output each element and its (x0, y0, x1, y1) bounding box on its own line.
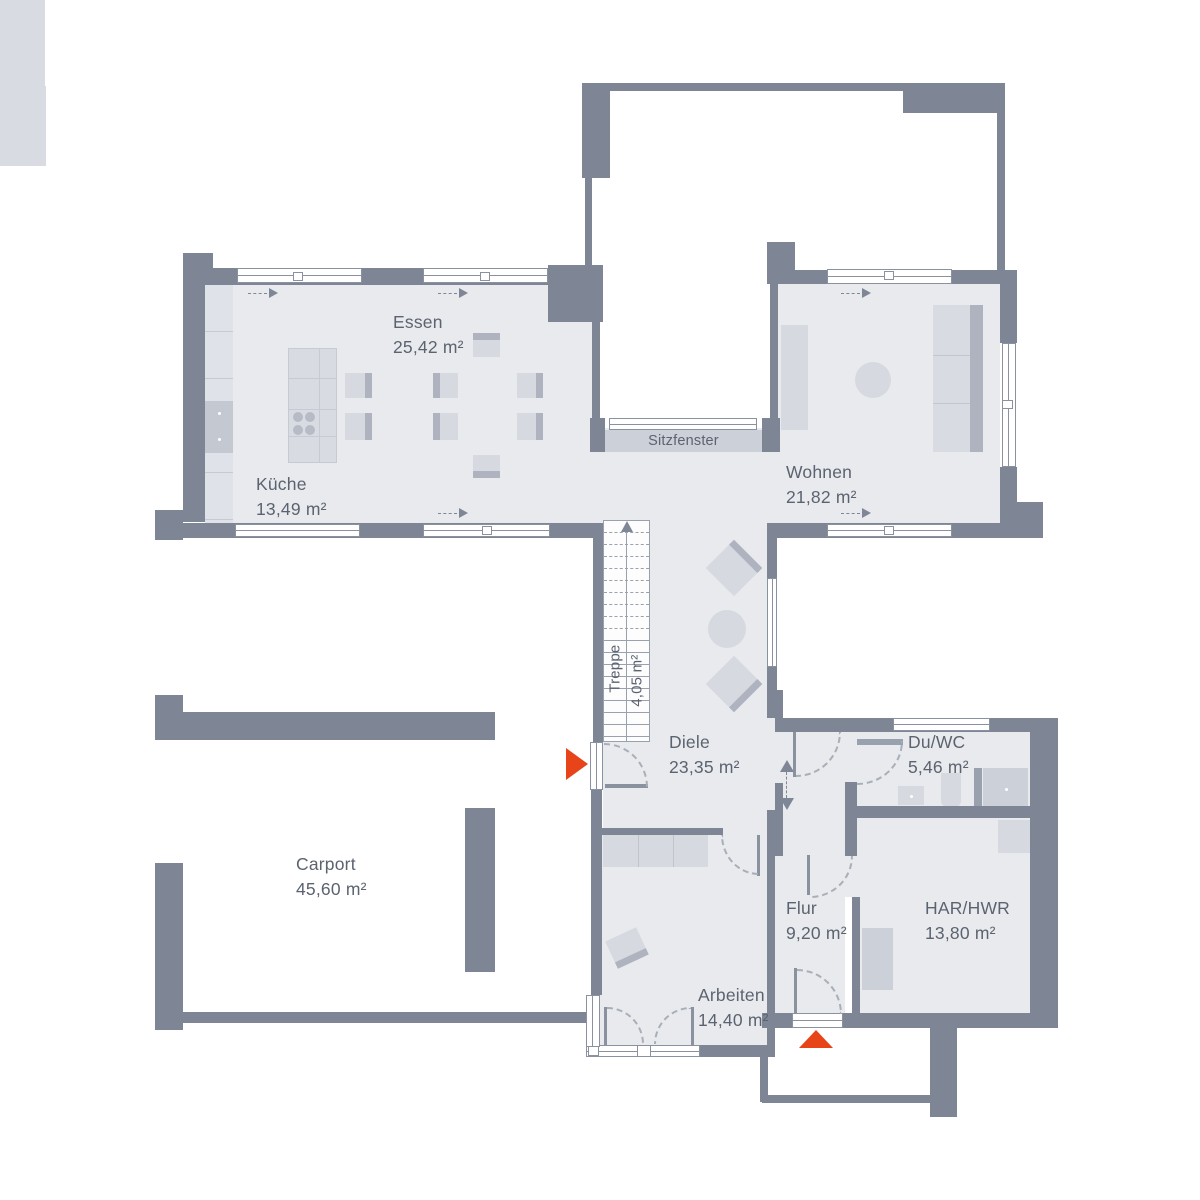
side-table (708, 610, 746, 648)
room-name: Carport (296, 852, 367, 877)
wall (183, 712, 495, 740)
room-label-wohnen: Wohnen 21,82 m² (786, 460, 857, 510)
dining-chair (473, 333, 500, 357)
room-label-harhwr: HAR/HWR 13,80 m² (925, 896, 1010, 946)
kitchen-island (288, 348, 337, 463)
dining-chair (473, 455, 500, 478)
room-area: 21,82 m² (786, 485, 857, 510)
wall (852, 897, 860, 1013)
room-label-essen: Essen 25,42 m² (393, 310, 464, 360)
room-area: 13,49 m² (256, 497, 327, 522)
room-area: 13,80 m² (925, 921, 1010, 946)
wall (548, 265, 603, 322)
window-marker (480, 272, 490, 281)
frame-post (637, 1045, 651, 1057)
wall (183, 268, 205, 522)
burner-icon (305, 425, 315, 435)
desk (0, 86, 46, 166)
room-name: Diele (669, 730, 740, 755)
bar-chair (345, 413, 372, 440)
dining-chair (433, 373, 458, 398)
room-area: 9,20 m² (786, 921, 847, 946)
passage-arrow-up-icon (780, 760, 794, 772)
window-marker (884, 271, 894, 280)
dining-table (0, 0, 45, 86)
window (767, 578, 777, 667)
entrance-arrow-icon (566, 748, 588, 780)
kitchen-sink (205, 401, 233, 425)
wall (997, 83, 1005, 272)
sitzfenster-bench: Sitzfenster (605, 430, 762, 452)
floor-plan: Sitzfenster Essen 25,42 m² Küche 13 (0, 0, 1200, 1200)
window-marker (293, 272, 303, 281)
wall (762, 1095, 930, 1103)
corner-window-frame (586, 995, 600, 1047)
window-opening-arrow-icon (248, 288, 278, 298)
burner-icon (293, 412, 303, 422)
wall (592, 322, 600, 428)
wall (1030, 718, 1058, 1028)
room-label-sitzfenster: Sitzfenster (648, 431, 719, 452)
room-label-kueche: Küche 13,49 m² (256, 472, 327, 522)
window-marker (482, 526, 492, 535)
room-name: Flur (786, 896, 847, 921)
wall (843, 1013, 1030, 1028)
room-label-treppe-area: 4,05 m² (626, 633, 647, 729)
wc-sink (898, 786, 924, 805)
passage-arrow-down-icon (780, 798, 794, 810)
room-label-treppe-name: Treppe (604, 621, 625, 717)
wall (1000, 270, 1017, 343)
wall (600, 828, 723, 835)
room-area: 25,42 m² (393, 335, 464, 360)
wall (767, 538, 777, 578)
dining-chair (517, 373, 543, 398)
frame-post (588, 1046, 599, 1056)
wall (845, 806, 1030, 818)
wall (770, 283, 778, 428)
room-name: Wohnen (786, 460, 857, 485)
room-area: 5,46 m² (908, 755, 969, 780)
room-label-flur: Flur 9,20 m² (786, 896, 847, 946)
room-name: HAR/HWR (925, 896, 1010, 921)
room-label-carport: Carport 45,60 m² (296, 852, 367, 902)
room-name: Du/WC (908, 730, 969, 755)
room-label-duwc: Du/WC 5,46 m² (908, 730, 969, 780)
side-door-frame (792, 1013, 843, 1028)
carport-pillar (465, 808, 495, 972)
entry-door-frame (590, 742, 603, 790)
wall (155, 863, 183, 1030)
room-area: 45,60 m² (296, 877, 367, 902)
sofa (933, 305, 983, 452)
wall (585, 91, 592, 268)
bar-chair (345, 373, 372, 398)
wall (903, 83, 998, 113)
wall (930, 1027, 957, 1117)
water-heater (998, 820, 1030, 853)
window-marker (1002, 400, 1013, 409)
room-area: 14,40 m² (698, 1008, 769, 1033)
wall (183, 1012, 588, 1023)
wall (590, 418, 605, 452)
wall (593, 538, 603, 742)
washing-machine (862, 928, 893, 990)
wall (845, 782, 857, 856)
dining-chair (517, 413, 543, 440)
window (235, 524, 360, 537)
tv-sideboard (781, 325, 808, 430)
room-name: Küche (256, 472, 327, 497)
room-name: Arbeiten (698, 983, 769, 1008)
wall (700, 1045, 775, 1057)
kitchen-stove-cell (205, 425, 233, 453)
wall (183, 253, 213, 268)
room-label-diele: Diele 23,35 m² (669, 730, 740, 780)
window-marker (884, 526, 894, 535)
shower (983, 768, 1028, 810)
stair-up-arrow-icon (621, 521, 633, 532)
door-leaf (691, 1007, 694, 1045)
wall (767, 810, 777, 835)
dining-chair (433, 413, 458, 440)
wall (155, 695, 183, 740)
window-opening-arrow-icon (438, 288, 468, 298)
burner-icon (305, 412, 315, 422)
office-shelf (603, 835, 708, 867)
room-name: Essen (393, 310, 464, 335)
coffee-table (855, 362, 891, 398)
passage-arrow-icon (786, 772, 787, 798)
entrance-arrow-icon (799, 1030, 833, 1048)
window-opening-arrow-icon (841, 288, 871, 298)
window-opening-arrow-icon (438, 508, 468, 518)
wall (591, 790, 602, 995)
burner-icon (293, 425, 303, 435)
room-area: 23,35 m² (669, 755, 740, 780)
sitzfenster-window (609, 418, 757, 430)
room-label-arbeiten: Arbeiten 14,40 m² (698, 983, 769, 1033)
